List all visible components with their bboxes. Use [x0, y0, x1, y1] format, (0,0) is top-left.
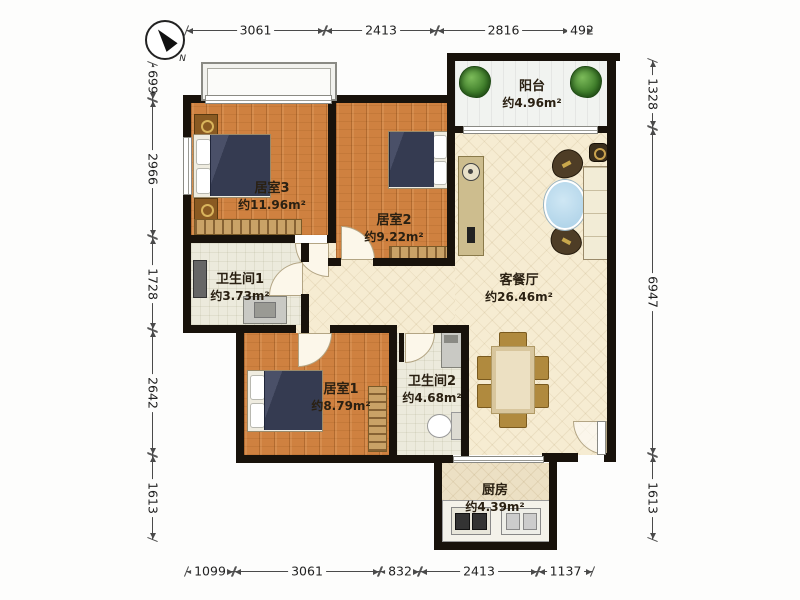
- dining-chair: [499, 412, 527, 428]
- lamp-icon: [462, 163, 480, 181]
- pillow: [433, 135, 447, 159]
- window: [205, 95, 332, 104]
- room-area: 约4.96m²: [502, 96, 561, 112]
- room-name: 居室2: [364, 213, 423, 230]
- bed-bedroom2: [388, 131, 449, 189]
- wall: [447, 126, 463, 133]
- wall: [447, 53, 455, 266]
- compass-north-label: N: [179, 54, 186, 64]
- dimension-bottom-4: 2413: [420, 571, 538, 572]
- side-table: [589, 143, 608, 162]
- washbasin: [441, 332, 463, 368]
- room-name: 居室3: [238, 181, 306, 198]
- room-label-bedroom3: 居室3 约11.96m²: [238, 181, 306, 213]
- wall: [301, 294, 309, 333]
- room-name: 卫生间2: [402, 374, 461, 391]
- dimension-value: 2413: [362, 22, 400, 37]
- coffee-table: [544, 180, 586, 230]
- nightstand: [194, 114, 218, 136]
- wall: [389, 333, 397, 463]
- room-area: 约26.46m²: [485, 290, 553, 306]
- window: [183, 137, 192, 195]
- dimension-bottom-1: 1099: [186, 571, 234, 572]
- floor-plan: N: [0, 0, 800, 600]
- wall: [328, 258, 341, 266]
- dining-chair: [533, 384, 549, 408]
- dimension-right-2: 6947: [652, 128, 653, 455]
- wall: [236, 455, 453, 463]
- dimension-top-3: 2816: [437, 30, 570, 31]
- dimension-top-2: 2413: [325, 30, 437, 31]
- toilet-bowl: [427, 414, 452, 438]
- wall: [183, 235, 295, 243]
- dimension-left-3: 1728: [152, 237, 153, 330]
- dimension-value: 832: [385, 563, 415, 578]
- bay-window-glass: [207, 68, 331, 97]
- wall: [373, 258, 455, 266]
- pillow: [196, 139, 211, 165]
- dimension-value: 699: [146, 67, 161, 97]
- door-leaf-bathroom2: [399, 333, 404, 362]
- dimension-value: 2642: [146, 374, 161, 412]
- room-name: 客餐厅: [485, 273, 553, 290]
- room-area: 约4.39m²: [465, 500, 524, 516]
- dimension-right-1: 1328: [652, 60, 653, 128]
- entry-door-leaf: [597, 421, 606, 455]
- dimension-value: 3061: [288, 563, 326, 578]
- wall: [327, 235, 336, 243]
- pillow: [250, 375, 265, 400]
- room-name: 阳台: [502, 79, 561, 96]
- dimension-left-4: 2642: [152, 330, 153, 455]
- room-label-balcony: 阳台 约4.96m²: [502, 79, 561, 111]
- closet: [368, 386, 387, 452]
- dimension-value: 1099: [191, 563, 229, 578]
- room-area: 约3.73m²: [210, 289, 269, 305]
- wall: [301, 243, 309, 262]
- wall: [389, 325, 397, 333]
- dimension-value: 2413: [460, 563, 498, 578]
- dimension-value: 2816: [485, 22, 523, 37]
- pillow: [250, 403, 265, 428]
- sink-basin: [506, 513, 520, 530]
- wall: [542, 453, 578, 462]
- dimension-left-2: 2966: [152, 100, 153, 237]
- dimension-right-3: 1613: [652, 455, 653, 540]
- lamp-center: [468, 169, 473, 174]
- balcony-sliding-window: [463, 126, 598, 134]
- plant-icon: [570, 66, 602, 98]
- dimension-value: 1613: [646, 479, 661, 517]
- room-name: 卫生间1: [210, 272, 269, 289]
- sink-basin: [254, 302, 276, 318]
- shower-panel: [193, 260, 207, 298]
- room-label-bedroom2: 居室2 约9.22m²: [364, 213, 423, 245]
- dimension-value: 492: [567, 22, 597, 37]
- dimension-value: 6947: [646, 273, 661, 311]
- room-area: 约11.96m²: [238, 198, 306, 214]
- compass-icon: N: [145, 20, 185, 60]
- kitchen-sliding-door: [453, 456, 544, 463]
- wall: [330, 325, 396, 333]
- wall: [549, 455, 557, 550]
- dimension-value: 1328: [646, 75, 661, 113]
- dimension-left-1: 699: [152, 63, 153, 100]
- dining-table: [491, 346, 535, 414]
- wall: [447, 53, 620, 61]
- dimension-top-1: 3061: [186, 30, 325, 31]
- wall: [183, 95, 191, 333]
- room-area: 约8.79m²: [311, 399, 370, 415]
- burner: [455, 513, 470, 530]
- dimension-top-4: 492: [570, 30, 594, 31]
- drainboard: [523, 513, 537, 530]
- room-area: 约4.68m²: [402, 391, 461, 407]
- blanket: [389, 132, 434, 187]
- dimension-value: 1613: [146, 479, 161, 517]
- toilet: [427, 410, 463, 440]
- compass-needle-icon: [152, 25, 177, 52]
- dimension-left-5: 1613: [152, 455, 153, 540]
- pillow: [433, 161, 447, 185]
- room-name: 厨房: [465, 483, 524, 500]
- dimension-bottom-3: 832: [380, 571, 420, 572]
- wall: [434, 455, 442, 550]
- room-label-bathroom2: 卫生间2 约4.68m²: [402, 374, 461, 406]
- dimension-value: 2966: [146, 150, 161, 188]
- room-label-kitchen: 厨房 约4.39m²: [465, 483, 524, 515]
- burner: [472, 513, 487, 530]
- dimension-value: 1137: [547, 563, 585, 578]
- wall: [461, 325, 469, 463]
- room-label-bedroom1: 居室1 约8.79m²: [311, 382, 370, 414]
- room-label-living-dining: 客餐厅 约26.46m²: [485, 273, 553, 305]
- dimension-bottom-5: 1137: [538, 571, 593, 572]
- wall: [236, 325, 244, 463]
- wardrobe: [194, 219, 302, 235]
- wall: [607, 53, 616, 462]
- tv-cabinet: [458, 156, 484, 256]
- cabinet-handle: [467, 227, 475, 243]
- wall: [328, 95, 336, 243]
- dimension-value: 1728: [146, 265, 161, 303]
- wall: [434, 542, 557, 550]
- dining-chair: [533, 356, 549, 380]
- plant-icon: [459, 66, 491, 98]
- faucet: [444, 335, 458, 343]
- dimension-bottom-2: 3061: [234, 571, 380, 572]
- room-label-bathroom1: 卫生间1 约3.73m²: [210, 272, 269, 304]
- room-area: 约9.22m²: [364, 230, 423, 246]
- sofa: [583, 166, 609, 260]
- nightstand: [194, 198, 218, 220]
- pillow: [196, 168, 211, 194]
- room-name: 居室1: [311, 382, 370, 399]
- dimension-value: 3061: [237, 22, 275, 37]
